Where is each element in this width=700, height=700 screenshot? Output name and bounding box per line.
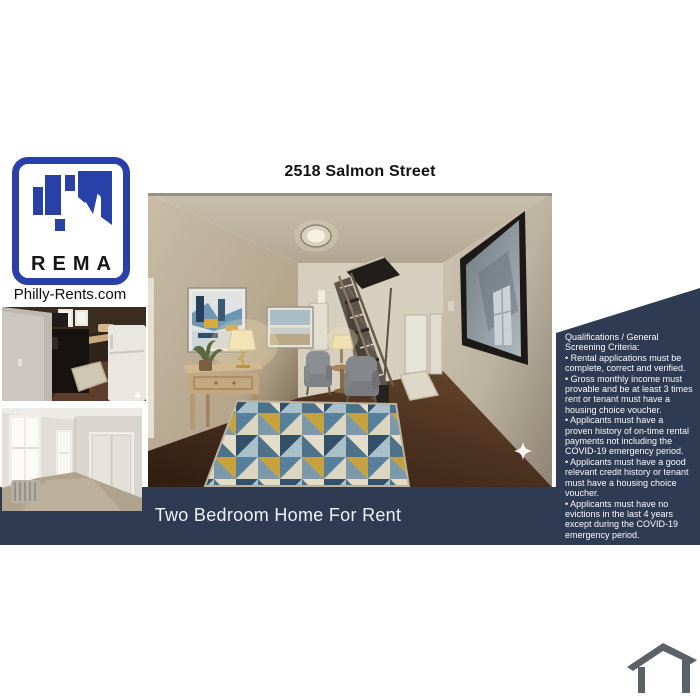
- page-title: 2518 Salmon Street: [140, 163, 580, 181]
- website-text: Philly-Rents.com: [0, 286, 140, 303]
- rema-logo: REMA: [12, 157, 130, 285]
- bedroom-photo: [2, 408, 142, 511]
- rema-logo-text: REMA: [19, 253, 123, 276]
- qualifications-heading: Qualifications / General Screening Crite…: [565, 332, 693, 353]
- living-room-photo: [148, 193, 552, 487]
- qualification-item: • Rental applications must be complete, …: [565, 353, 693, 374]
- kitchen-photo: [2, 307, 146, 401]
- qualification-item: • Applicants must have a good relevant c…: [565, 457, 693, 499]
- qualifications-text: Qualifications / General Screening Crite…: [565, 332, 693, 540]
- qualification-item: • Gross monthly income must provable and…: [565, 374, 693, 416]
- rental-flyer: 2518 Salmon Street REMA Philly-Rents.com…: [0, 0, 700, 700]
- qualification-item: • Applicants must have no evictions in t…: [565, 499, 693, 541]
- rema-logo-mark: [22, 167, 120, 249]
- qualification-item: • Applicants must have a proven history …: [565, 415, 693, 457]
- qualifications-panel: Qualifications / General Screening Crite…: [556, 288, 700, 545]
- house-outline-icon: [626, 641, 700, 699]
